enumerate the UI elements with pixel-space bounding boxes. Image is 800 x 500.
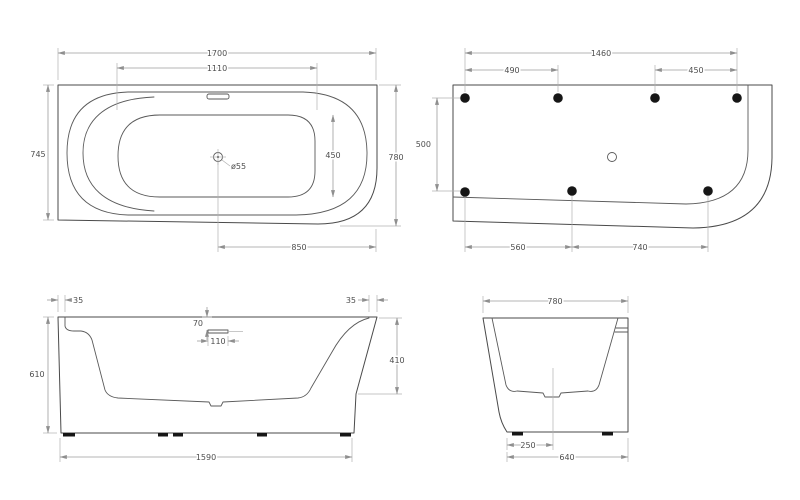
drain-icon — [210, 149, 230, 166]
foot-pad — [340, 433, 351, 437]
dim-end-drain-offset: 250 — [520, 441, 535, 450]
dim-side-right-height: 410 — [389, 356, 404, 365]
dim-plan-drain-to-right: 850 — [291, 243, 306, 252]
fixing-point-dot — [650, 93, 660, 103]
plan-head-step — [83, 97, 154, 211]
fixing-points — [460, 93, 742, 197]
dim-plan-basin-length: 1110 — [207, 64, 227, 73]
underside-view: 1460 490 450 500 560 740 — [416, 48, 772, 252]
fixing-point-dot — [732, 93, 742, 103]
underside-base-edge — [453, 85, 748, 204]
overflow-slot-side-icon — [208, 330, 228, 333]
dim-fixing-gap-right: 450 — [688, 66, 703, 75]
dim-plan-overall-length: 1700 — [207, 49, 227, 58]
dim-side-base-length: 1590 — [196, 453, 216, 462]
dim-side-rim-left: 35 — [73, 296, 83, 305]
side-view: 35 35 70 110 610 410 1590 — [29, 295, 404, 462]
end-outline — [483, 318, 628, 432]
fixing-point-dot — [460, 93, 470, 103]
dim-plan-basin-width: 450 — [325, 151, 340, 160]
foot-pad — [602, 432, 613, 436]
drain-hole-icon — [608, 153, 617, 162]
feet-pads — [63, 433, 351, 437]
dim-side-height: 610 — [29, 370, 44, 379]
foot-pad — [257, 433, 267, 437]
side-outline — [58, 317, 377, 433]
dim-side-overflow-length: 110 — [210, 337, 225, 346]
dim-fixing-bottom-left: 560 — [510, 243, 525, 252]
overflow-slot-icon — [207, 94, 229, 99]
fixing-point-dot — [567, 186, 577, 196]
dim-fixing-bottom-right: 740 — [632, 243, 647, 252]
end-basin-profile — [492, 318, 618, 397]
dim-plan-right-width: 780 — [388, 153, 403, 162]
foot-pad — [158, 433, 168, 437]
dim-end-base-width: 640 — [559, 453, 574, 462]
foot-pad — [512, 432, 523, 436]
drawing-svg: 1700 1110 745 780 450 850 ø55 — [0, 0, 800, 500]
fixing-point-dot — [460, 187, 470, 197]
plan-view: 1700 1110 745 780 450 850 ø55 — [30, 48, 403, 252]
dim-plan-drain-diameter: ø55 — [231, 162, 246, 171]
end-view: 780 250 640 — [483, 296, 628, 462]
dim-side-overflow-depth: 70 — [193, 319, 203, 328]
overflow-slot-end-icon — [615, 328, 628, 332]
dim-end-width: 780 — [547, 297, 562, 306]
fixing-point-dot — [703, 186, 713, 196]
dim-fixing-gap-left: 490 — [504, 66, 519, 75]
fixing-point-dot — [553, 93, 563, 103]
dim-side-rim-right: 35 — [346, 296, 356, 305]
dim-fixing-span: 1460 — [591, 49, 611, 58]
technical-drawing-sheet: 1700 1110 745 780 450 850 ø55 — [0, 0, 800, 500]
underside-outline — [453, 85, 772, 228]
dim-fixing-row-spacing: 500 — [416, 140, 431, 149]
foot-pad — [63, 433, 75, 437]
foot-pad — [173, 433, 183, 437]
dim-plan-left-width: 745 — [30, 150, 45, 159]
plan-basin-floor — [118, 115, 315, 197]
